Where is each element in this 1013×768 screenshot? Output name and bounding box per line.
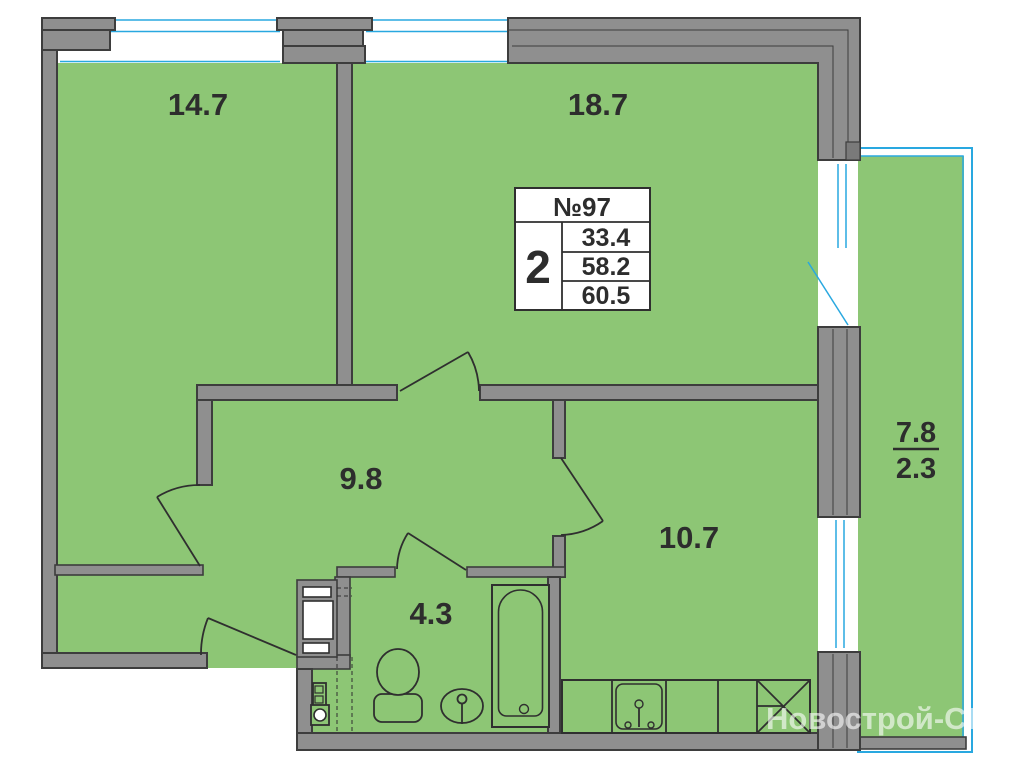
wall-pillar-topleft (42, 30, 110, 50)
living-room-label: 14.7 (168, 87, 228, 122)
balcony-floor-edge (858, 737, 966, 749)
wall-pillar-center-low (283, 46, 365, 63)
closet (297, 580, 337, 657)
kitchen-balcony-window (820, 515, 858, 652)
wall-pillar-center-cap (277, 18, 372, 30)
wall-living-bedroom (337, 63, 352, 390)
wall-living-nook (197, 400, 212, 485)
total-area: 60.5 (582, 282, 631, 310)
wall-bath-left (297, 669, 312, 735)
rooms-count: 2 (525, 241, 551, 293)
wall-hall-top-left (197, 385, 397, 400)
watermark: Новострой-СПб (766, 701, 1008, 736)
wall-outer-bottom-left (42, 653, 207, 668)
floorplan-drawing: №97 2 33.4 58.2 60.5 14.7 18.7 9.8 10.7 … (0, 0, 1013, 768)
wall-bath-top-left (337, 567, 395, 577)
bathtub (492, 585, 549, 727)
wall-outer-right-mid (818, 327, 860, 517)
window-center (363, 19, 516, 63)
balcony-area-total: 7.8 (896, 417, 936, 449)
toilet (374, 649, 422, 722)
hallway-label: 9.8 (339, 461, 382, 496)
unit-number: №97 (553, 192, 611, 222)
unit-info-box: №97 2 33.4 58.2 60.5 (515, 188, 650, 310)
balcony-area-reduced: 2.3 (896, 453, 936, 485)
bathroom-sink (441, 689, 483, 724)
bathroom-label: 4.3 (409, 596, 452, 631)
living-area: 33.4 (582, 224, 631, 252)
bedroom-label: 18.7 (568, 87, 628, 122)
apartment-area: 58.2 (582, 253, 631, 281)
wall-hall-kitchen-upper (553, 400, 565, 458)
wall-balcony-junction-stub (846, 142, 860, 160)
wall-hall-top-right (480, 385, 818, 400)
bedroom-balcony-window (820, 160, 858, 252)
floorplan-page: №97 2 33.4 58.2 60.5 14.7 18.7 9.8 10.7 … (0, 0, 1013, 768)
wall-vestibule (55, 565, 203, 575)
wall-bath-top-right (467, 567, 565, 577)
wall-pillar-center-mid (283, 30, 363, 46)
kitchen-sink (616, 684, 662, 729)
wall-pillar-topleft-cap (42, 18, 115, 30)
kitchen-label: 10.7 (659, 520, 719, 555)
wall-outer-bottom (297, 733, 818, 750)
